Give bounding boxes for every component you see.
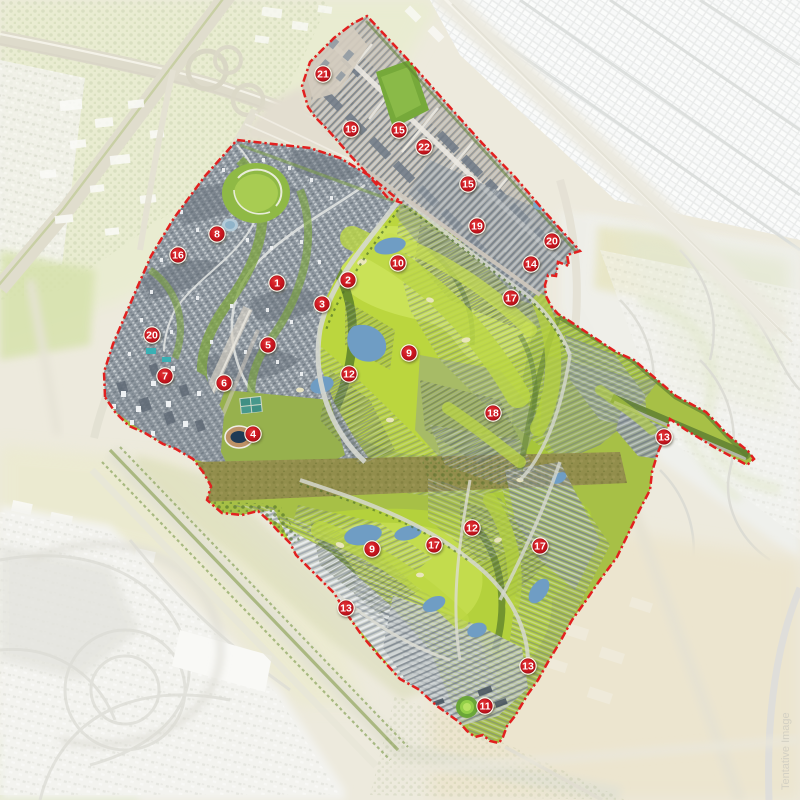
svg-text:9: 9	[369, 543, 375, 555]
svg-text:6: 6	[221, 377, 227, 389]
svg-text:20: 20	[146, 329, 158, 341]
svg-text:17: 17	[534, 540, 546, 552]
svg-text:18: 18	[487, 407, 499, 419]
svg-text:16: 16	[172, 249, 184, 261]
svg-text:20: 20	[546, 235, 558, 247]
svg-text:13: 13	[340, 602, 352, 614]
svg-text:13: 13	[658, 431, 670, 443]
svg-text:Tentative Image: Tentative Image	[780, 712, 792, 790]
svg-text:9: 9	[406, 347, 412, 359]
svg-text:15: 15	[393, 124, 405, 136]
svg-text:1: 1	[274, 277, 280, 289]
svg-text:12: 12	[343, 368, 355, 380]
svg-text:8: 8	[214, 228, 220, 240]
svg-text:17: 17	[505, 292, 517, 304]
svg-text:22: 22	[418, 141, 430, 153]
svg-text:5: 5	[265, 339, 271, 351]
svg-text:3: 3	[319, 298, 325, 310]
svg-text:2: 2	[345, 274, 351, 286]
svg-text:14: 14	[525, 258, 537, 270]
svg-text:13: 13	[522, 660, 534, 672]
svg-text:19: 19	[471, 220, 483, 232]
svg-text:7: 7	[162, 370, 168, 382]
svg-text:11: 11	[479, 700, 490, 712]
svg-text:17: 17	[428, 539, 440, 551]
svg-text:15: 15	[462, 178, 474, 190]
svg-text:4: 4	[250, 428, 256, 440]
svg-text:19: 19	[345, 123, 357, 135]
svg-text:21: 21	[317, 68, 329, 80]
svg-text:12: 12	[466, 522, 478, 534]
svg-text:10: 10	[392, 257, 404, 269]
